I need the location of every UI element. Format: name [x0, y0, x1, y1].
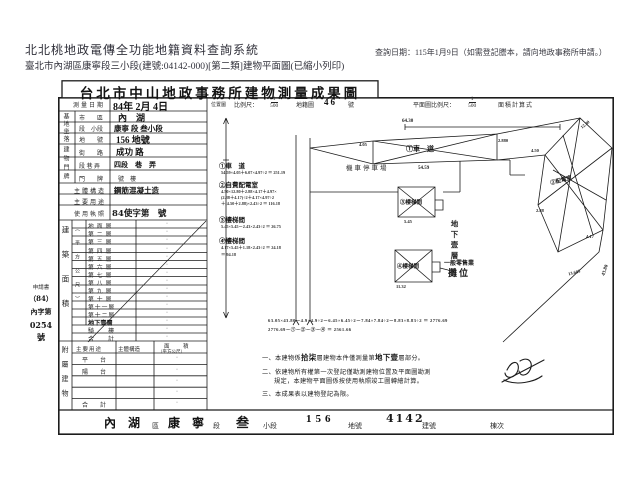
application-label: 申請書 — [26, 283, 56, 291]
west-boundary — [293, 135, 313, 325]
area-dot: · — [166, 278, 168, 284]
cadastral-sheet-no: 46 — [324, 97, 337, 107]
doc-subtitle: 臺北市內湖區康寧段三小段(建號:04142-000)[第二類]建物平面圖(已縮小… — [25, 58, 344, 72]
total-area-calc-1: 63.05×43.80－4.9×4.9÷2－6.45×6.45÷2－7.84×7… — [268, 318, 448, 324]
annotation-2-calc: ＋(4.50＋2.88)×2.43÷2 ＝ 116.18 — [221, 201, 280, 207]
area-dot: · — [166, 246, 168, 252]
scale-denominator: 500 — [270, 103, 278, 109]
footer-building-value: 4142 — [386, 412, 425, 425]
license-label: 使用執照 — [74, 209, 106, 218]
signature-scribble — [502, 359, 544, 383]
dim-4-50: 4.50 — [531, 148, 539, 153]
usage-label: 主要用途 — [74, 197, 106, 206]
ramp-label: ①車 道 — [406, 144, 434, 154]
note-2-line-1: 二、依建物所有權第一次登記僅勘測建物位置及平面圖勘測 — [262, 367, 431, 376]
plan-scale-numerator: 1 — [469, 96, 476, 103]
plan-scale-denominator: 500 — [468, 103, 476, 109]
area-dot: · — [166, 326, 168, 332]
area-dot: · — [166, 237, 168, 243]
note-1-text: 一、本建物係 — [262, 355, 301, 362]
plan-scale-fraction: 1 500 — [468, 96, 476, 109]
dim-5-45: 5.45 — [404, 219, 412, 224]
attached-row-0: 平 台 — [82, 355, 109, 364]
footer-parcel-label: 地號 — [348, 421, 362, 431]
door-group-label: 建物門牌 — [61, 146, 70, 182]
structure-label: 主體構造 — [74, 186, 106, 195]
attached-header-unit: （平方公尺） — [158, 349, 185, 355]
attached-header-structure: 主體構造 — [118, 345, 140, 353]
plan-scale-label: 平面圖比例尺： — [413, 100, 455, 109]
footer-subsection-label: 小段 — [263, 421, 277, 431]
footer-section-value: 康 寧 — [168, 414, 204, 431]
note-2-line-2: 規定，本建物平面圖係按使用執照竣工圖轉繪計算。 — [274, 376, 423, 385]
area-dot: · — [166, 310, 168, 316]
dim-2-88: 2.88 — [536, 208, 544, 213]
scale-numerator: 1 — [271, 96, 278, 103]
area-dot: · — [166, 270, 168, 276]
footer-building-label: 建號 — [422, 421, 436, 431]
dim-54-59: 54.59 — [418, 166, 429, 171]
footer-parcel-value: 156 — [306, 413, 335, 425]
application-no: 0254 — [26, 320, 56, 330]
area-calc-label: 面積計算式 — [498, 100, 533, 109]
dim-64-30: 64.30 — [402, 119, 413, 124]
screen: 北北桃地政電傳全功能地籍資料查詢系統 查詢日期：115年1月9日（如需登記謄本，… — [0, 0, 640, 480]
door-row-value-1: 四段 巷 弄 — [114, 160, 156, 170]
annotation-4-title: ④樓梯間 — [219, 235, 245, 245]
system-title: 北北桃地政電傳全功能地籍資料查詢系統 — [25, 41, 259, 58]
note-3: 三、本成果表以建物登記為限。 — [262, 389, 353, 398]
annotation-4-calc: 4.17×5.45＋1.18×2.43÷2 ＝ 24.18 — [221, 245, 281, 251]
area-dot: · — [176, 400, 178, 406]
boundary-diagonal — [503, 230, 603, 342]
power-room-outline — [538, 118, 612, 252]
annotation-1-title: ①車 道 — [219, 160, 245, 170]
area-dot: · — [176, 378, 178, 384]
dim-11-32: 11.32 — [396, 284, 406, 289]
area-dot: · — [166, 262, 168, 268]
annotation-1-calc: 54.59×4.05＋6.07×4.97÷2 ＝ 251.19 — [221, 170, 285, 176]
footer-unit-label: 棟次 — [490, 421, 504, 431]
stair3-label: ③樓梯間 — [400, 198, 422, 206]
door-row-label-1: 段 巷 弄 — [79, 161, 100, 170]
survey-document: 台北市中山地政事務所建物測量成果圖 測量日期 84年 2月 4日 基地坐落 市 … — [58, 80, 616, 437]
footer-subsection-value: 叁 — [236, 412, 249, 431]
connector-lines — [310, 118, 580, 192]
site-row-label-0: 市 區 — [79, 113, 103, 122]
floor-area-unit: （平方公尺） — [73, 226, 80, 324]
survey-date-label: 測量日期 — [73, 100, 105, 109]
door-row-value-0: 成功 路 — [116, 146, 144, 158]
site-row-label-2: 地 號 — [79, 135, 103, 144]
site-group-label: 基地坐落 — [61, 113, 70, 143]
license-value: 84使字第 號 — [112, 207, 166, 219]
annotation-3-title: ③樓梯間 — [219, 214, 245, 224]
location-scale-fraction: 1 500 — [270, 96, 278, 109]
annotation-4-calc: ＝ 94.18 — [221, 252, 236, 258]
note-1-hand-floors: 拾柒 — [301, 353, 317, 362]
application-suffix: 號 — [26, 332, 56, 343]
total-row: 合 計 — [88, 334, 118, 343]
door-row-label-0: 街 路 — [79, 148, 103, 157]
area-dot: · — [166, 286, 168, 292]
note-1-hand-basement: 地下壹 — [375, 353, 398, 362]
note-1-text: 層建物本件僅測量第 — [317, 355, 375, 362]
stair4-label: ④樓梯間 — [397, 262, 419, 270]
stall-label: 攤位 — [448, 266, 470, 279]
total-area-calc-2: 2776.69－①－②－③－④ ＝ 2561.66 — [268, 327, 352, 333]
cadastral-sheet-label: 地籍圖 — [296, 100, 314, 109]
area-dot: · — [166, 294, 168, 300]
floor-area-group-label: 建築面積 — [60, 226, 71, 336]
footer-section-label: 段 — [213, 421, 220, 431]
footer-district-value: 內 湖 — [104, 414, 140, 431]
area-dot: · — [166, 302, 168, 308]
structure-value: 鋼筋混凝土造 — [114, 185, 159, 196]
dim-4-05: 4.05 — [359, 142, 367, 147]
top-dimension-line — [405, 124, 560, 130]
attached-header-usage: 主要用途 — [76, 345, 102, 353]
site-row-value-2: 156 地號 — [116, 133, 150, 146]
cadastral-sheet-suffix: 號 — [348, 100, 354, 109]
area-dot: · — [166, 318, 168, 324]
location-map-label: 位置圖 — [211, 101, 226, 108]
application-number-block: 申請書 （84） 內字第 0254 號 — [26, 283, 56, 343]
area-dot: · — [176, 367, 178, 373]
area-dot: · — [176, 389, 178, 395]
door-row-value-2: 號 樓 — [118, 174, 136, 183]
parking-label: 機車停車場 — [346, 162, 389, 172]
application-word: 內字第 — [26, 307, 56, 317]
location-scale-label: 比例尺： — [234, 100, 258, 109]
application-year: （84） — [26, 294, 56, 304]
door-row-label-2: 門 牌 — [79, 174, 103, 183]
dim-2-880: 2.880 — [498, 138, 508, 143]
attached-group-label: 附屬建物 — [60, 346, 70, 406]
annotation-3-calc: 5.45×5.45－2.43×2.43÷2 ＝ 26.75 — [221, 224, 281, 230]
area-dot: · — [176, 355, 178, 361]
site-row-label-1: 段 小段 — [79, 124, 103, 133]
footer-district-label: 區 — [152, 421, 159, 431]
query-date: 查詢日期：115年1月9日（如需登記謄本，請向地政事務所申請。） — [375, 47, 607, 58]
note-1: 一、本建物係拾柒層建物本件僅測量第地下壹層部分。 — [262, 352, 424, 363]
dim-4-17: 4.17 — [586, 234, 594, 239]
attached-row-4: 合 計 — [82, 400, 109, 409]
area-dot: · — [166, 229, 168, 235]
area-dot: · — [166, 221, 168, 227]
ramp-outline — [310, 134, 497, 164]
area-dot: · — [166, 334, 168, 340]
note-1-text: 層部分。 — [398, 355, 424, 362]
attached-row-1: 陽 台 — [82, 367, 109, 376]
annotation-2-title: ②自費配電室 — [219, 179, 258, 189]
area-dot: · — [166, 254, 168, 260]
